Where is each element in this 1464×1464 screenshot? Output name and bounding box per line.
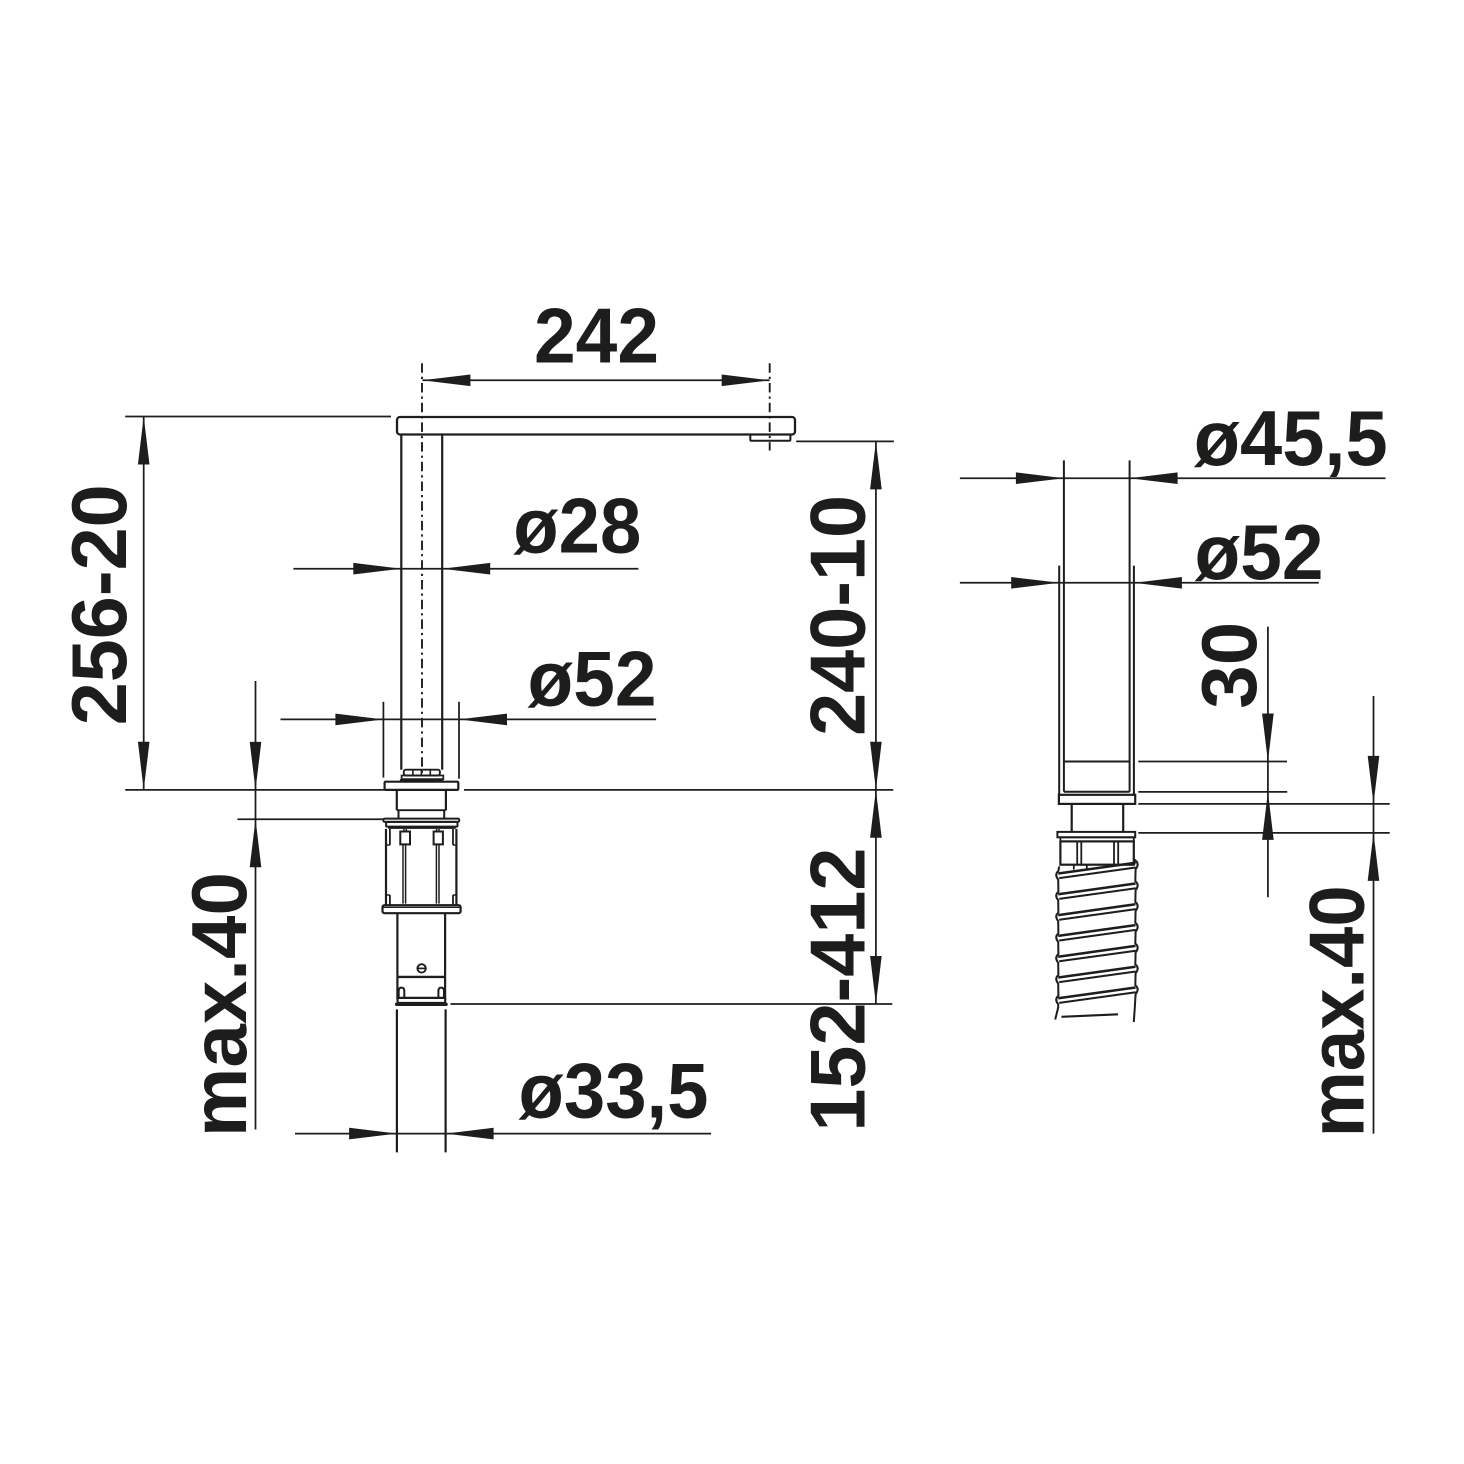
svg-text:256-20: 256-20: [55, 484, 143, 725]
svg-text:ø52: ø52: [1195, 508, 1324, 596]
svg-text:ø33,5: ø33,5: [519, 1046, 709, 1134]
svg-text:max.40: max.40: [1292, 885, 1380, 1137]
svg-text:152-412: 152-412: [794, 848, 882, 1132]
svg-text:ø28: ø28: [513, 482, 641, 570]
svg-text:max.40: max.40: [175, 872, 263, 1137]
svg-text:240-10: 240-10: [793, 495, 881, 736]
svg-text:ø52: ø52: [528, 635, 657, 723]
svg-text:242: 242: [534, 292, 659, 380]
svg-text:ø45,5: ø45,5: [1194, 394, 1388, 482]
svg-text:30: 30: [1185, 622, 1273, 709]
